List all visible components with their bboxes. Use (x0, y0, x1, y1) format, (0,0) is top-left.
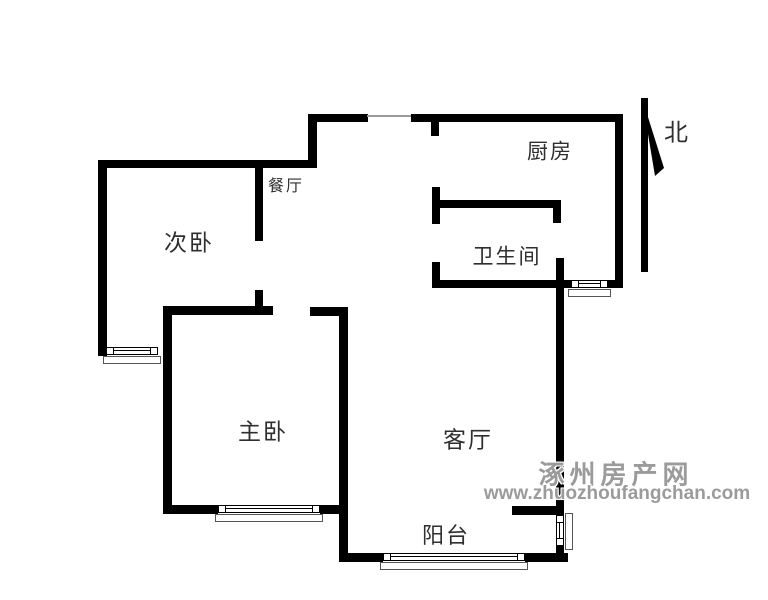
wall-master-left-wall (163, 306, 172, 514)
wall-top-wall-east (411, 114, 623, 122)
wall-bedroom2-hall-wall (255, 163, 263, 241)
wall-master-bottom-wall-east (320, 505, 348, 514)
balcony-side-window-cap-bottom (556, 538, 564, 546)
wall-kitchen-entry-stub (431, 122, 439, 136)
bathroom-window-glass (578, 280, 601, 288)
wall-top-wall-west (308, 114, 368, 122)
entry-door-line (367, 115, 411, 117)
room-label-master-bedroom: 主卧 (238, 421, 288, 444)
bedroom2-window-cap-right (150, 347, 158, 355)
bedroom2-window-cap-left (106, 347, 114, 355)
wall-master-bottom-wall-west (163, 505, 218, 514)
room-label-balcony: 阳台 (422, 525, 470, 547)
bedroom2-window-sill (103, 356, 161, 364)
balcony-window-sill (380, 562, 528, 570)
wall-bathroom-top-right-stub (553, 208, 561, 223)
wall-bedroom2-top-wall (98, 160, 317, 168)
north-label: 北 (664, 113, 688, 148)
wall-bathroom-top-wall (440, 200, 561, 208)
room-label-bathroom: 卫生间 (473, 247, 542, 268)
master-window-glass (225, 505, 313, 513)
wall-master-living-wall (339, 307, 348, 562)
bathroom-window-cap-right (600, 280, 608, 288)
master-window-cap-right (312, 505, 320, 513)
wall-master-top-wall (163, 306, 273, 315)
room-label-living-room: 客厅 (443, 429, 493, 452)
balcony-window-cap-left (383, 553, 391, 561)
balcony-side-window-glass (556, 522, 564, 539)
balcony-window-glass (390, 553, 518, 561)
master-window-cap-left (218, 505, 226, 513)
wall-bedroom2-left-wall (98, 160, 107, 356)
wall-living-bottom-wall (512, 506, 564, 515)
balcony-side-window-sill (565, 513, 573, 550)
room-label-dining: 餐厅 (268, 179, 304, 195)
balcony-window-cap-right (517, 553, 525, 561)
room-label-bedroom2: 次卧 (164, 232, 214, 255)
bathroom-window-sill (568, 289, 611, 297)
bedroom2-window-glass (113, 347, 151, 355)
bathroom-window-cap-left (571, 280, 579, 288)
wall-balcony-right-corner (556, 546, 564, 562)
room-label-kitchen: 厨房 (527, 142, 573, 163)
floorplan: 北 次卧餐厅厨房卫生间主卧客厅阳台 (0, 0, 768, 600)
wall-bathroom-bottom-wall-west (432, 280, 571, 288)
wall-balcony-bottom-wall-west (343, 553, 383, 562)
wall-bedroom2-hall-stub (255, 290, 263, 307)
balcony-side-window-cap-top (556, 515, 564, 523)
master-window-sill (215, 514, 323, 522)
wall-living-right-wall (556, 258, 564, 515)
wall-bathroom-left-wall-upper (432, 187, 440, 224)
wall-kitchen-right-wall (615, 114, 623, 288)
